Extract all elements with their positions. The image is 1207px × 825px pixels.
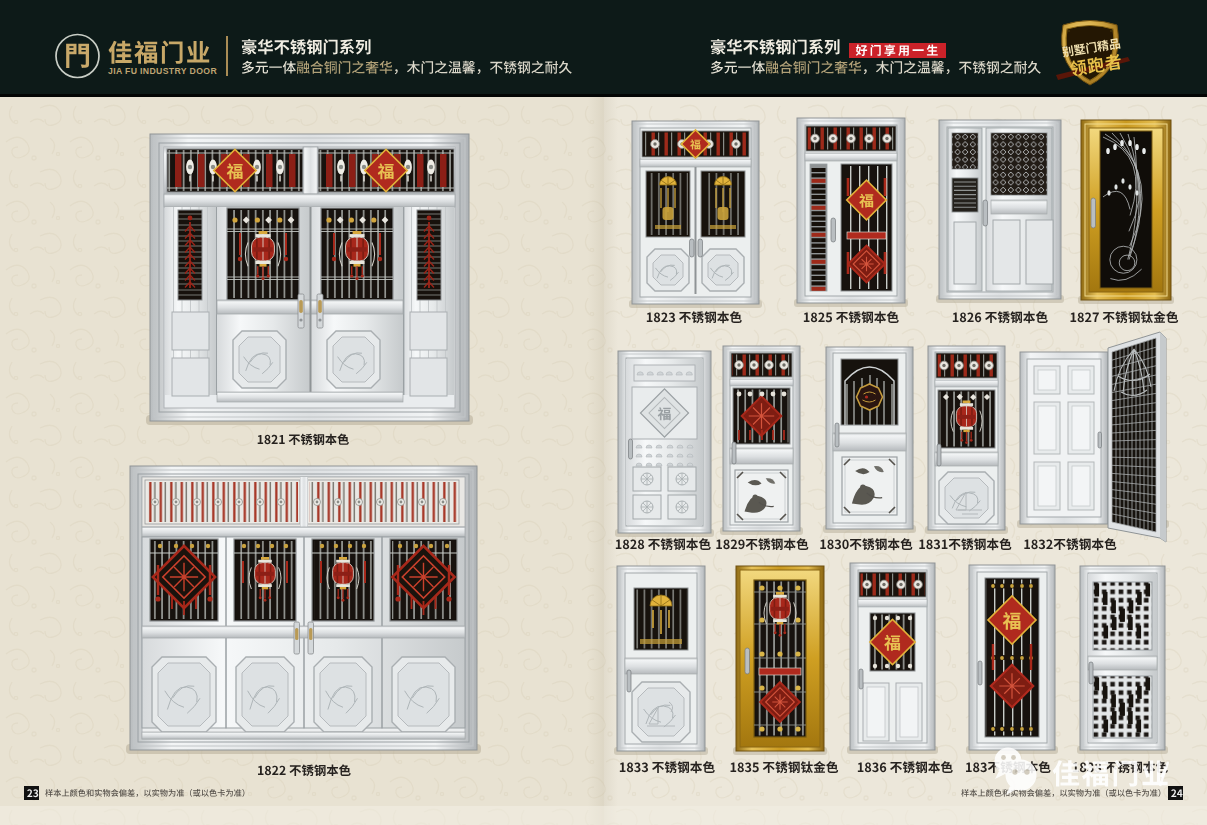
svg-text:JIA FU INDUSTRY DOOR: JIA FU INDUSTRY DOOR bbox=[108, 66, 217, 76]
